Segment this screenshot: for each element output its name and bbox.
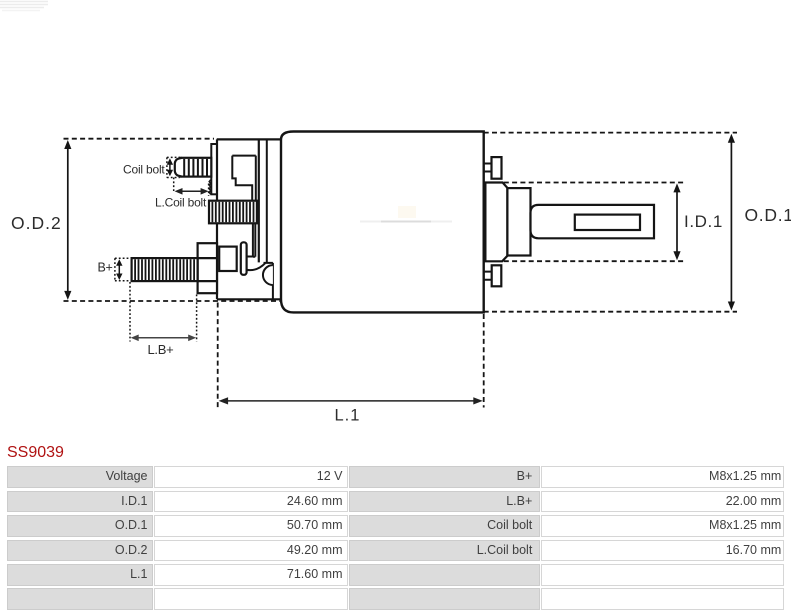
svg-text:B+: B+: [98, 261, 113, 275]
svg-text:O.D.1: O.D.1: [745, 205, 791, 225]
svg-text:O.D.2: O.D.2: [11, 213, 62, 233]
svg-text:Coil bolt: Coil bolt: [123, 163, 165, 177]
svg-text:L.B+: L.B+: [148, 342, 174, 357]
svg-text:L.Coil bolt: L.Coil bolt: [155, 196, 207, 210]
svg-text:I.D.1: I.D.1: [684, 212, 723, 231]
svg-text:L.1: L.1: [335, 407, 361, 425]
